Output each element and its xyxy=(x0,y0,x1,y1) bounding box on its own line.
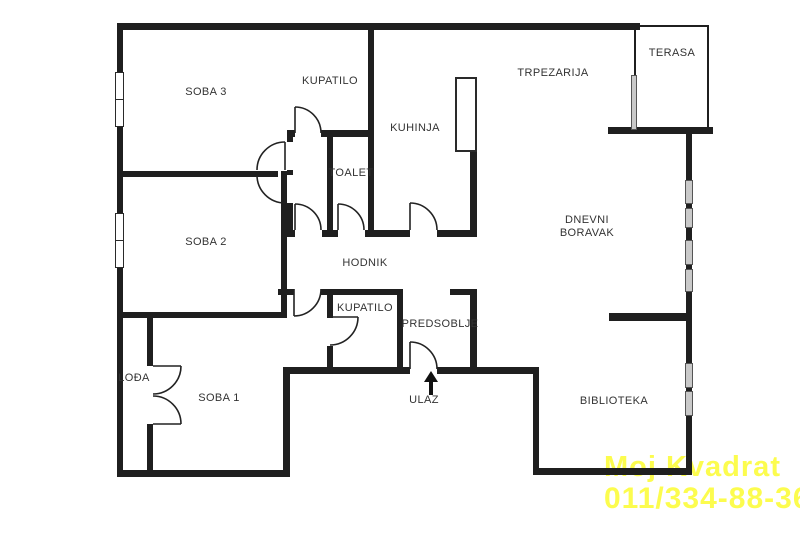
door-arc xyxy=(153,396,181,424)
room-label-dnevni-boravak: DNEVNI BORAVAK xyxy=(560,214,614,240)
door-arc xyxy=(295,107,321,133)
room-label-soba-1: SOBA 1 xyxy=(198,392,240,404)
room-label-terasa: TERASA xyxy=(649,47,695,59)
room-label-kupatilo-top: KUPATILO xyxy=(302,75,358,87)
room-label-kuhinja: KUHINJA xyxy=(390,122,440,134)
room-label-predsoblje: PREDSOBLJE xyxy=(402,318,479,330)
room-label-trpezarija: TRPEZARIJA xyxy=(517,67,588,79)
room-label-soba-3: SOBA 3 xyxy=(185,86,227,98)
door-arc xyxy=(294,289,321,316)
door-arc xyxy=(330,317,358,345)
floor-plan: Moj Kvadrat 011/334-88-36 xyxy=(0,0,800,533)
room-label-dnevni-line2: BORAVAK xyxy=(560,227,614,239)
room-label-kupatilo-bottom: KUPATILO xyxy=(337,302,393,314)
room-label-biblioteka: BIBLIOTEKA xyxy=(580,395,648,407)
door-arc xyxy=(257,142,285,170)
door-arc xyxy=(153,366,181,394)
door-arc xyxy=(410,342,437,369)
door-arc xyxy=(257,175,285,203)
room-label-hodnik: HODNIK xyxy=(342,257,387,269)
door-arc xyxy=(338,204,364,230)
room-label-soba-2: SOBA 2 xyxy=(185,236,227,248)
room-label-toalet: TOALET xyxy=(329,167,374,179)
room-label-dnevni-line1: DNEVNI xyxy=(565,214,609,226)
room-label-lodja: LOĐA xyxy=(118,372,150,384)
door-arc xyxy=(295,204,321,230)
door-arc xyxy=(410,203,437,230)
entrance-arrow-stem xyxy=(429,381,433,395)
room-label-ulaz: ULAZ xyxy=(409,394,439,406)
door-swings-layer xyxy=(0,0,800,533)
